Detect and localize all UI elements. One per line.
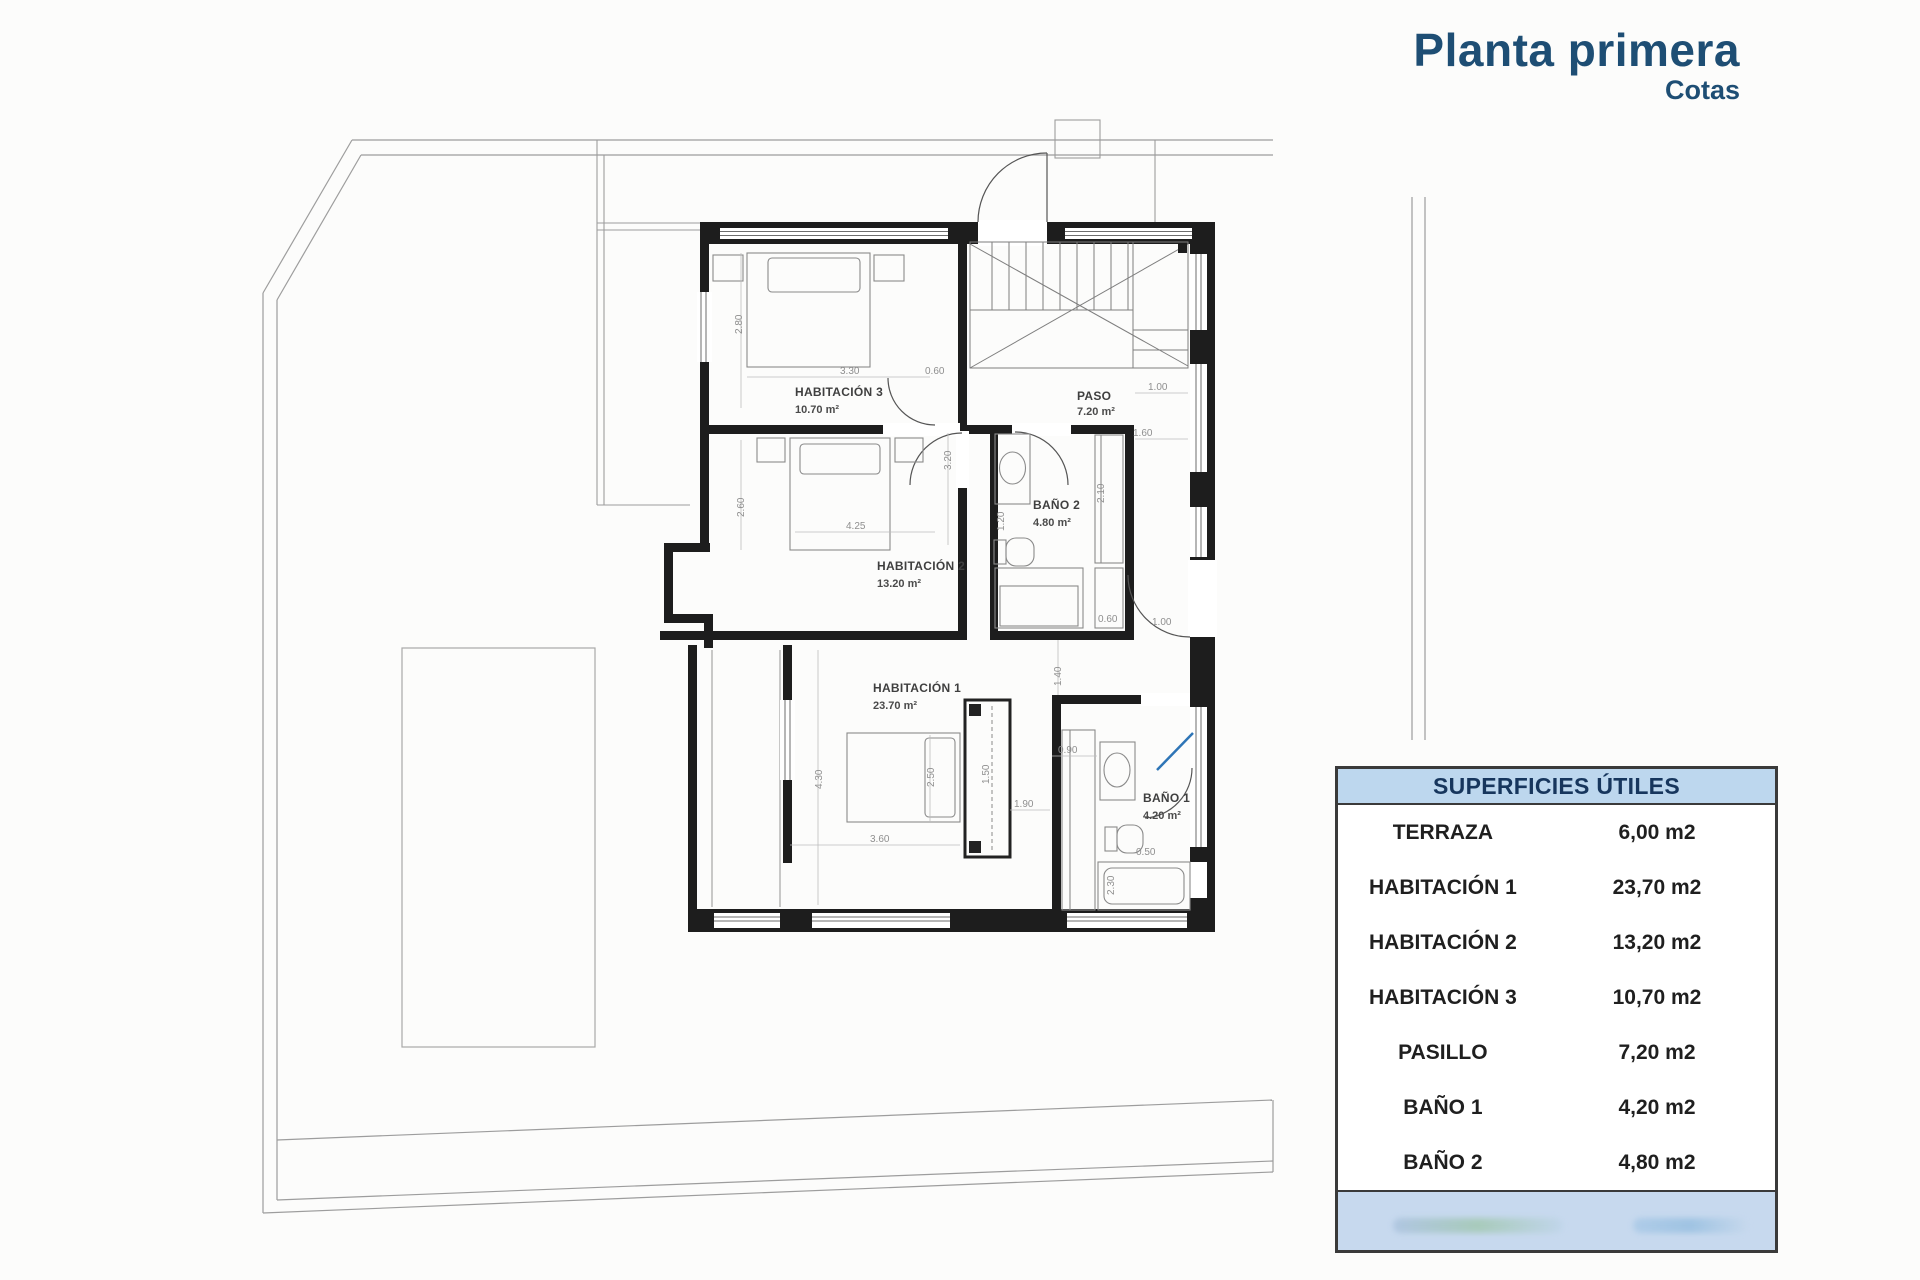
room-area-habitacion-2: 13.20 m² xyxy=(877,578,921,590)
dim-text: 2.80 xyxy=(734,314,745,334)
room-area-bano-1: 4.20 m² xyxy=(1143,810,1181,822)
pool-outline xyxy=(402,648,595,1047)
page-subtitle: Cotas xyxy=(1413,74,1740,106)
bed-habitacion-2 xyxy=(757,438,923,550)
door-marker-bath1 xyxy=(1157,733,1193,770)
table-row-label: HABITACIÓN 2 xyxy=(1338,931,1548,955)
table-row: PASILLO7,20 m2 xyxy=(1338,1025,1775,1080)
room-area-bano-2: 4.80 m² xyxy=(1033,517,1071,529)
room-label-paso: PASO xyxy=(1077,389,1111,403)
bed-habitacion-1 xyxy=(847,733,960,822)
room-label-habitacion-1: HABITACIÓN 1 xyxy=(873,680,961,695)
table-row-label: BAÑO 2 xyxy=(1338,1151,1548,1175)
dim-text: 2.50 xyxy=(926,767,937,787)
table-row-label: HABITACIÓN 1 xyxy=(1338,876,1548,900)
dim-text: 4.25 xyxy=(846,521,866,532)
dim-text: 0.90 xyxy=(1058,745,1078,756)
footer-watermark xyxy=(1393,1218,1563,1233)
room-area-habitacion-1: 23.70 m² xyxy=(873,700,917,712)
surfaces-table: SUPERFICIES ÚTILES TERRAZA6,00 m2HABITAC… xyxy=(1335,766,1778,1253)
room-area-paso: 7.20 m² xyxy=(1077,406,1115,418)
room-area-habitacion-3: 10.70 m² xyxy=(795,404,839,416)
dim-text: 1.60 xyxy=(1133,428,1153,439)
bath2-fixtures xyxy=(994,434,1123,628)
surfaces-table-header: SUPERFICIES ÚTILES xyxy=(1338,769,1775,805)
dim-text: 2.10 xyxy=(1096,483,1107,503)
dim-text: 1.50 xyxy=(981,764,992,784)
door-swings xyxy=(888,153,1192,818)
dim-text: 1.20 xyxy=(996,511,1007,531)
table-row-label: HABITACIÓN 3 xyxy=(1338,986,1548,1010)
dim-text: 3.20 xyxy=(943,450,954,470)
footer-watermark xyxy=(1633,1218,1748,1233)
dim-text: 3.60 xyxy=(870,834,890,845)
dim-text: 0.60 xyxy=(1098,614,1118,625)
table-row: TERRAZA6,00 m2 xyxy=(1338,805,1775,860)
room-label-habitacion-3: HABITACIÓN 3 xyxy=(795,384,883,399)
dim-text: 2.30 xyxy=(1106,875,1117,895)
table-row-label: TERRAZA xyxy=(1338,821,1548,845)
dim-text: 0.60 xyxy=(925,366,945,377)
table-row: HABITACIÓN 123,70 m2 xyxy=(1338,860,1775,915)
dim-text: 4.30 xyxy=(814,769,825,789)
table-row: BAÑO 14,20 m2 xyxy=(1338,1080,1775,1135)
dim-text: 3.30 xyxy=(840,366,860,377)
surfaces-table-rows: TERRAZA6,00 m2HABITACIÓN 123,70 m2HABITA… xyxy=(1338,805,1775,1190)
table-row-value: 13,20 m2 xyxy=(1583,931,1732,955)
table-row-value: 23,70 m2 xyxy=(1583,876,1732,900)
table-row-label: PASILLO xyxy=(1338,1041,1548,1065)
plot-boundary xyxy=(263,140,1425,1213)
dim-text: 1.90 xyxy=(1014,799,1034,810)
dim-text: 1.40 xyxy=(1053,666,1064,686)
table-row-value: 10,70 m2 xyxy=(1583,986,1732,1010)
staircase xyxy=(970,242,1188,368)
room-label-bano-1: BAÑO 1 xyxy=(1143,790,1190,805)
table-row-value: 6,00 m2 xyxy=(1583,821,1732,845)
table-row: BAÑO 24,80 m2 xyxy=(1338,1135,1775,1190)
table-row-label: BAÑO 1 xyxy=(1338,1096,1548,1120)
table-row-value: 4,80 m2 xyxy=(1583,1151,1732,1175)
entry-landing xyxy=(1055,120,1100,158)
dim-text: 1.00 xyxy=(1148,382,1168,393)
table-row-value: 4,20 m2 xyxy=(1583,1096,1732,1120)
room-label-bano-2: BAÑO 2 xyxy=(1033,497,1080,512)
table-row: HABITACIÓN 310,70 m2 xyxy=(1338,970,1775,1025)
table-row-value: 7,20 m2 xyxy=(1583,1041,1732,1065)
bed-habitacion-3 xyxy=(713,253,904,367)
surfaces-table-footer xyxy=(1338,1190,1775,1250)
table-row: HABITACIÓN 213,20 m2 xyxy=(1338,915,1775,970)
title-block: Planta primera Cotas xyxy=(1413,26,1740,107)
room-label-habitacion-2: HABITACIÓN 2 xyxy=(877,558,965,573)
dim-text: 2.60 xyxy=(736,497,747,517)
page-title: Planta primera xyxy=(1413,26,1740,74)
dim-text: 1.00 xyxy=(1152,617,1172,628)
dim-text: 0.50 xyxy=(1136,847,1156,858)
